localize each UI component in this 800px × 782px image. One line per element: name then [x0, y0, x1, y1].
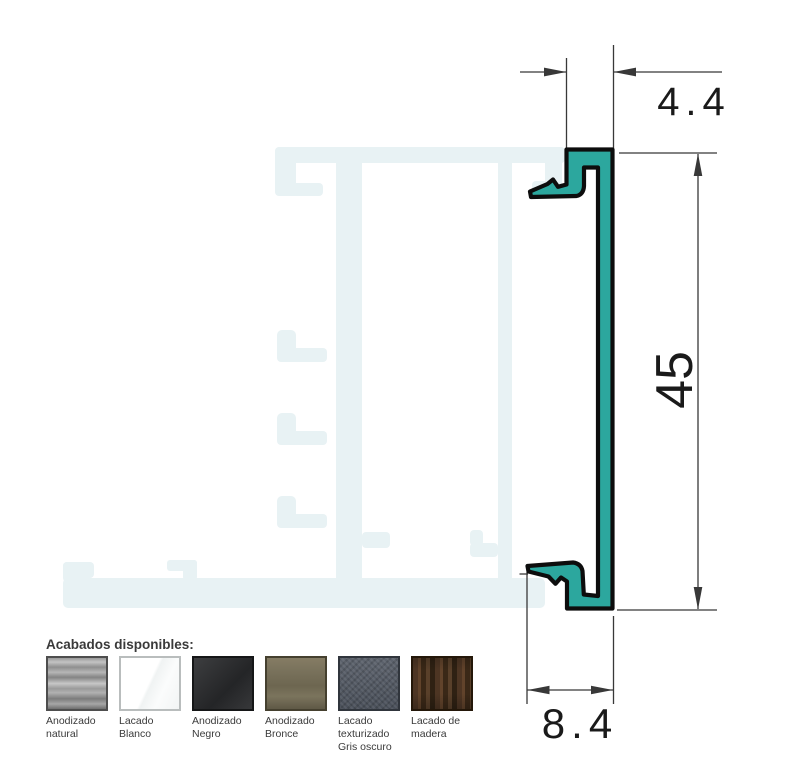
finish-option: Lacado texturizado Gris oscuro: [338, 656, 400, 754]
arrow-top-right: [614, 68, 637, 77]
dimension-bottom-width-value: 8.4: [525, 701, 635, 747]
dimension-right-height-value: 45: [647, 320, 703, 440]
arrow-top-left: [544, 68, 567, 77]
finish-option: Lacado Blanco: [119, 656, 181, 754]
finish-label: Lacado Blanco: [119, 715, 181, 741]
finish-option: Anodizado Negro: [192, 656, 254, 754]
profile-cross-section: [528, 150, 613, 609]
arrow-bottom-right: [591, 686, 613, 695]
finish-swatch-anodizado-bronce: [265, 656, 327, 711]
finishes-swatch-row: Anodizado natural Lacado Blanco Anodizad…: [46, 656, 473, 754]
finish-label: Lacado texturizado Gris oscuro: [338, 715, 400, 754]
arrow-bottom-left: [528, 686, 550, 695]
finish-swatch-lacado-texturizado: [338, 656, 400, 711]
finish-swatch-anodizado-negro: [192, 656, 254, 711]
finish-swatch-lacado-madera: [411, 656, 473, 711]
finish-option: Anodizado natural: [46, 656, 108, 754]
finish-label: Anodizado natural: [46, 715, 108, 741]
finishes-title: Acabados disponibles:: [46, 637, 473, 653]
arrow-right-up: [694, 154, 703, 177]
arrow-right-down: [694, 587, 703, 610]
finish-swatch-lacado-blanco: [119, 656, 181, 711]
finish-label: Anodizado Negro: [192, 715, 254, 741]
finishes-legend: Acabados disponibles: Anodizado natural …: [46, 637, 473, 754]
finish-option: Lacado de madera: [411, 656, 473, 754]
finish-label: Lacado de madera: [411, 715, 473, 741]
technical-drawing-page: 4.4 45 8.4 Acabados disponibles: Anodiza…: [0, 0, 800, 782]
finish-option: Anodizado Bronce: [265, 656, 327, 754]
finish-label: Anodizado Bronce: [265, 715, 327, 741]
finish-swatch-anodizado-natural: [46, 656, 108, 711]
dimension-top-width-value: 4.4: [639, 80, 749, 124]
ghost-frame-profile: [63, 147, 565, 608]
